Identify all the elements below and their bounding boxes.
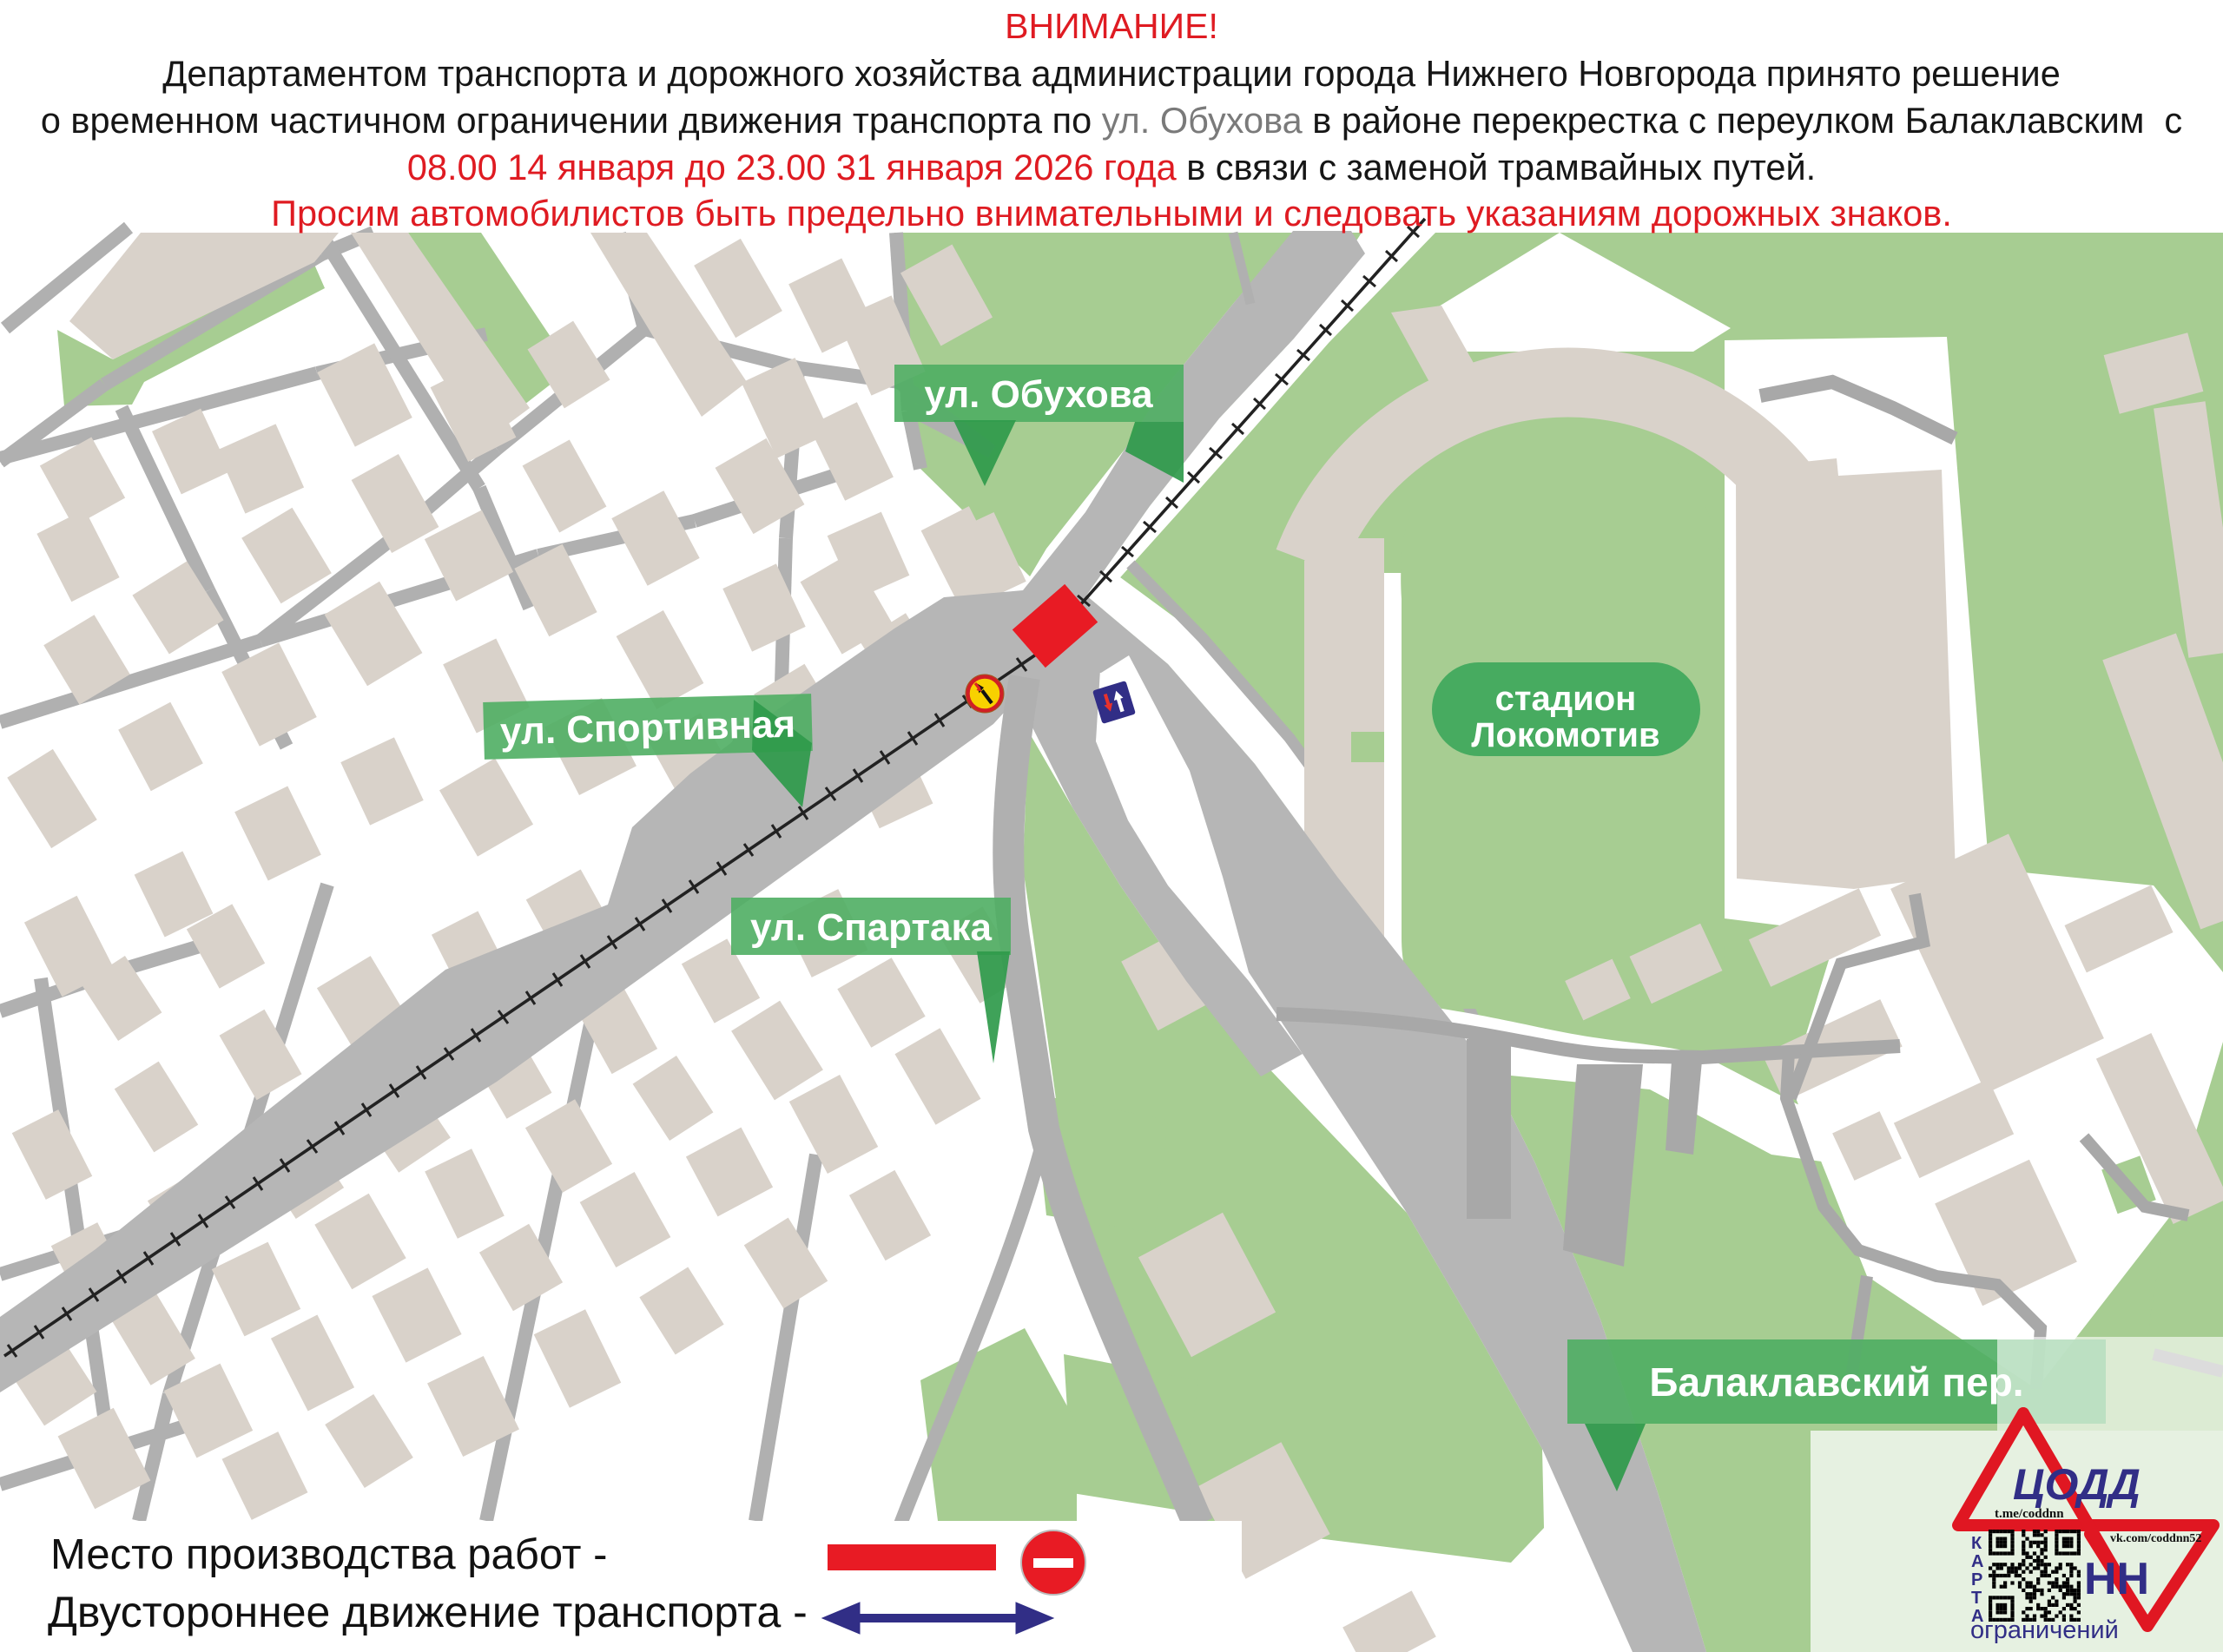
svg-text:К: К <box>1971 1534 1982 1553</box>
svg-text:Р: Р <box>1971 1570 1982 1589</box>
svg-text:Т: Т <box>1971 1589 1982 1608</box>
svg-text:стадион: стадион <box>1495 680 1637 718</box>
svg-text:НН: НН <box>2084 1554 2149 1604</box>
svg-text:ЦОДД: ЦОДД <box>2013 1460 2141 1509</box>
svg-text:vk.com/coddnn52: vk.com/coddnn52 <box>2110 1532 2201 1545</box>
svg-text:ул. Обухова: ул. Обухова <box>924 373 1153 416</box>
svg-text:ул. Спортивная: ул. Спортивная <box>499 703 795 754</box>
svg-text:Локомотив: Локомотив <box>1471 716 1659 754</box>
svg-text:А: А <box>1971 1552 1983 1571</box>
svg-text:t.me/coddnn: t.me/coddnn <box>1995 1507 2064 1521</box>
svg-text:Балаклавский пер.: Балаклавский пер. <box>1649 1359 2023 1405</box>
svg-text:ул. Спартака: ул. Спартака <box>750 906 992 949</box>
